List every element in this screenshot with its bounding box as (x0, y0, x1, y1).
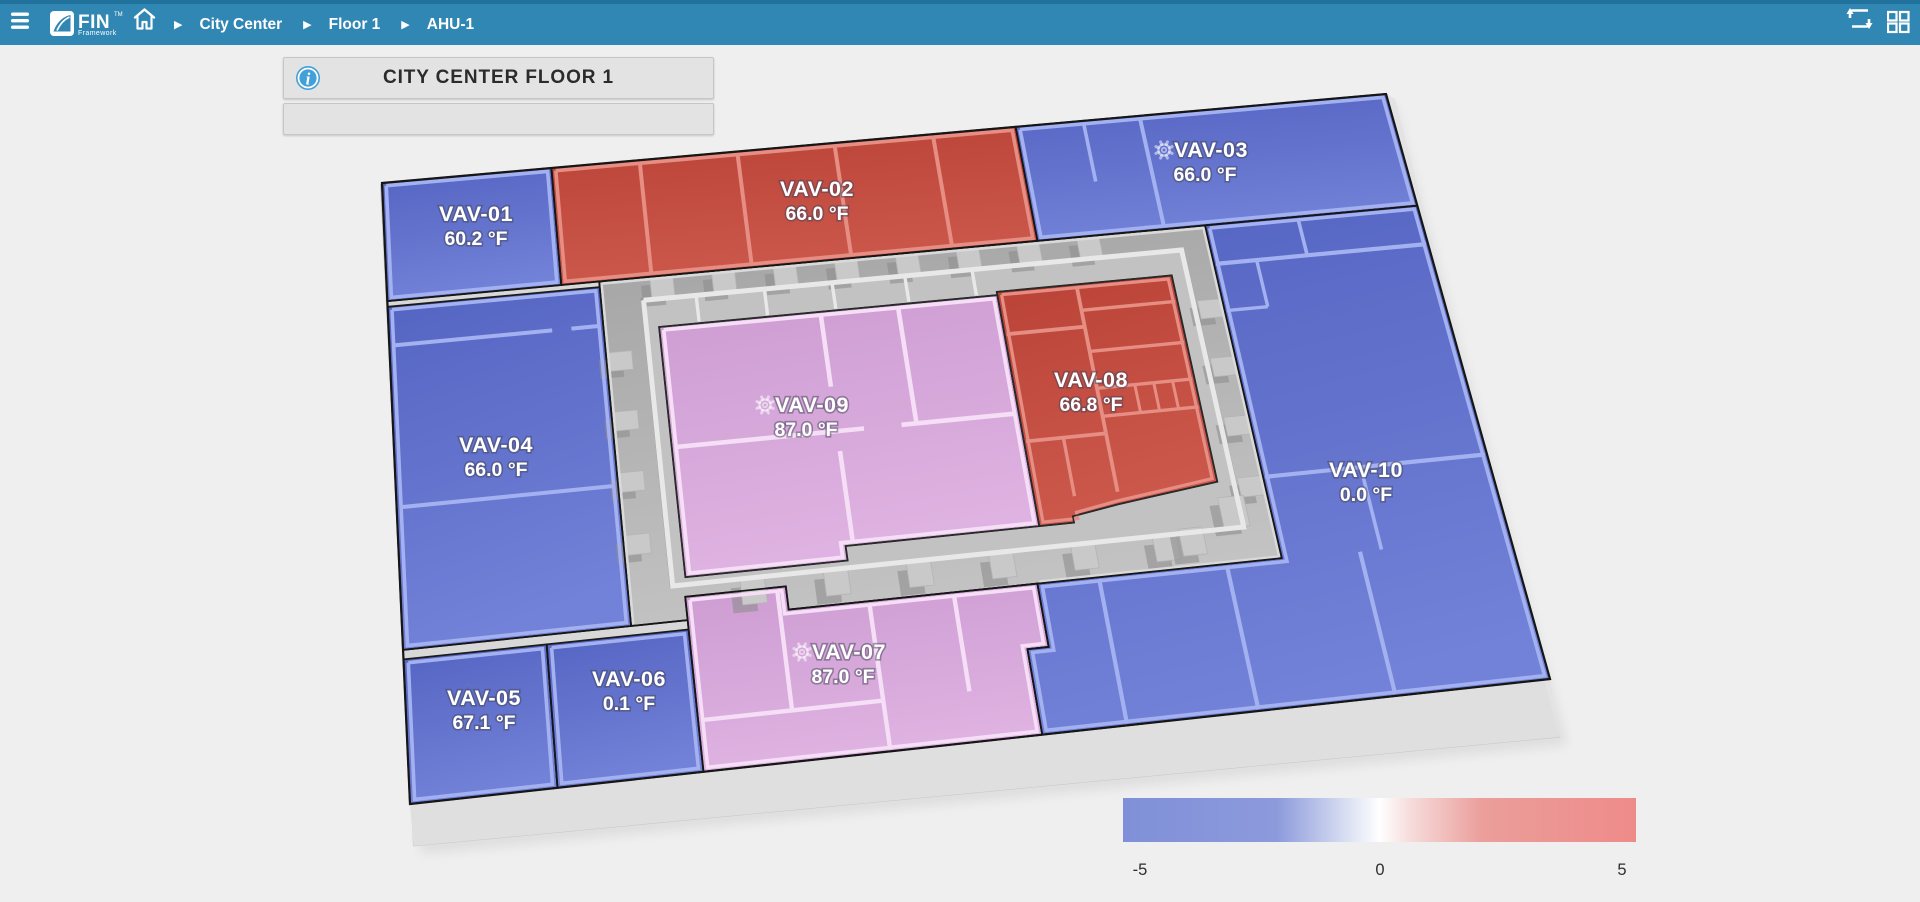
svg-text:87.0 °F: 87.0 °F (811, 666, 874, 688)
svg-text:VAV-06: VAV-06 (592, 667, 666, 691)
svg-text:VAV-10: VAV-10 (1329, 458, 1403, 482)
svg-text:87.0 °F: 87.0 °F (774, 419, 837, 441)
svg-text:VAV-01: VAV-01 (439, 202, 513, 226)
svg-text:0: 0 (1375, 861, 1384, 879)
svg-text:66.0 °F: 66.0 °F (1173, 164, 1236, 186)
svg-text:0.1 °F: 0.1 °F (603, 693, 655, 715)
svg-text:0.0 °F: 0.0 °F (1340, 484, 1392, 506)
svg-text:67.1 °F: 67.1 °F (452, 712, 515, 734)
svg-text:VAV-02: VAV-02 (780, 177, 854, 201)
svg-text:66.0 °F: 66.0 °F (785, 203, 848, 225)
svg-text:60.2 °F: 60.2 °F (444, 228, 507, 250)
svg-text:5: 5 (1617, 861, 1626, 879)
svg-text:VAV-08: VAV-08 (1054, 368, 1128, 392)
svg-text:66.0 °F: 66.0 °F (464, 459, 527, 481)
svg-text:VAV-05: VAV-05 (447, 686, 521, 710)
svg-text:-5: -5 (1133, 861, 1148, 879)
svg-text:i: i (306, 70, 311, 89)
svg-text:VAV-07: VAV-07 (812, 640, 886, 664)
svg-text:66.8 °F: 66.8 °F (1059, 394, 1122, 416)
svg-text:VAV-03: VAV-03 (1174, 138, 1248, 162)
svg-text:VAV-09: VAV-09 (775, 393, 849, 417)
svg-text:VAV-04: VAV-04 (459, 433, 533, 457)
